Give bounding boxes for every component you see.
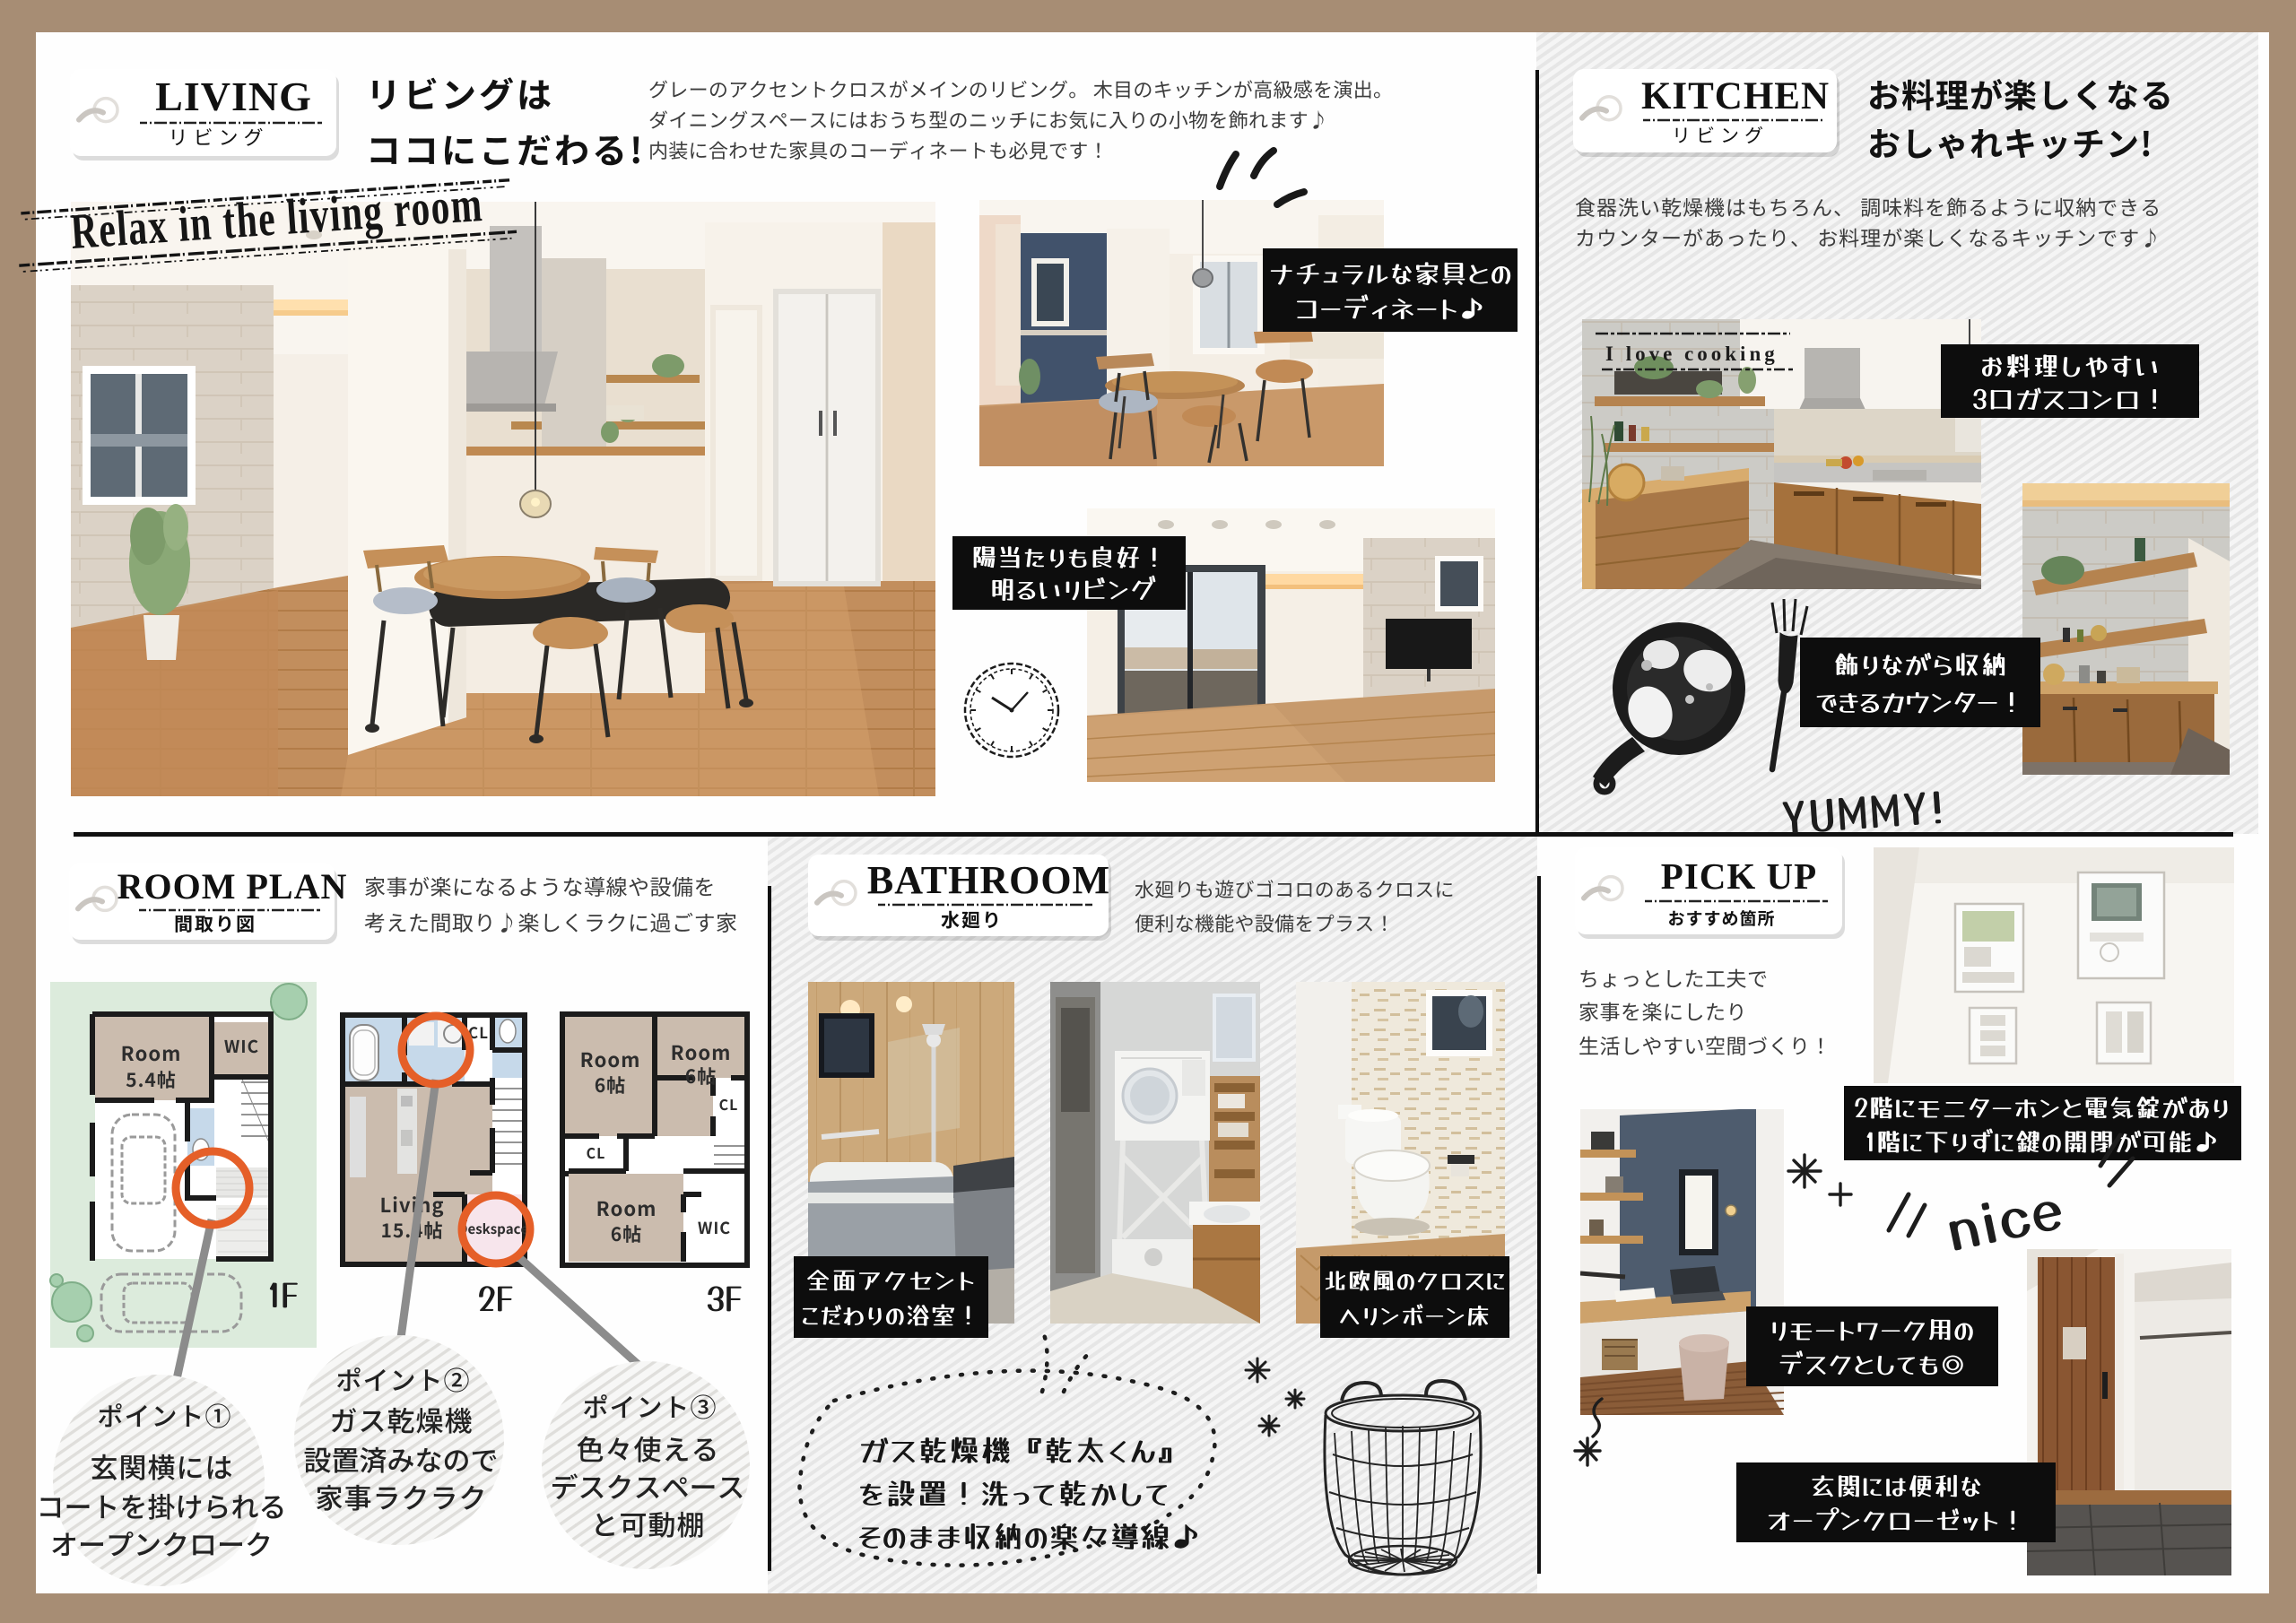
svg-text:BATHROOM: BATHROOM [867, 858, 1110, 902]
svg-text:PICK UP: PICK UP [1661, 855, 1817, 897]
svg-text:KITCHEN: KITCHEN [1641, 75, 1830, 117]
svg-text:LIVING: LIVING [155, 74, 312, 119]
svg-text:I love cooking: I love cooking [1605, 343, 1779, 365]
svg-text:ROOM PLAN: ROOM PLAN [117, 866, 348, 907]
